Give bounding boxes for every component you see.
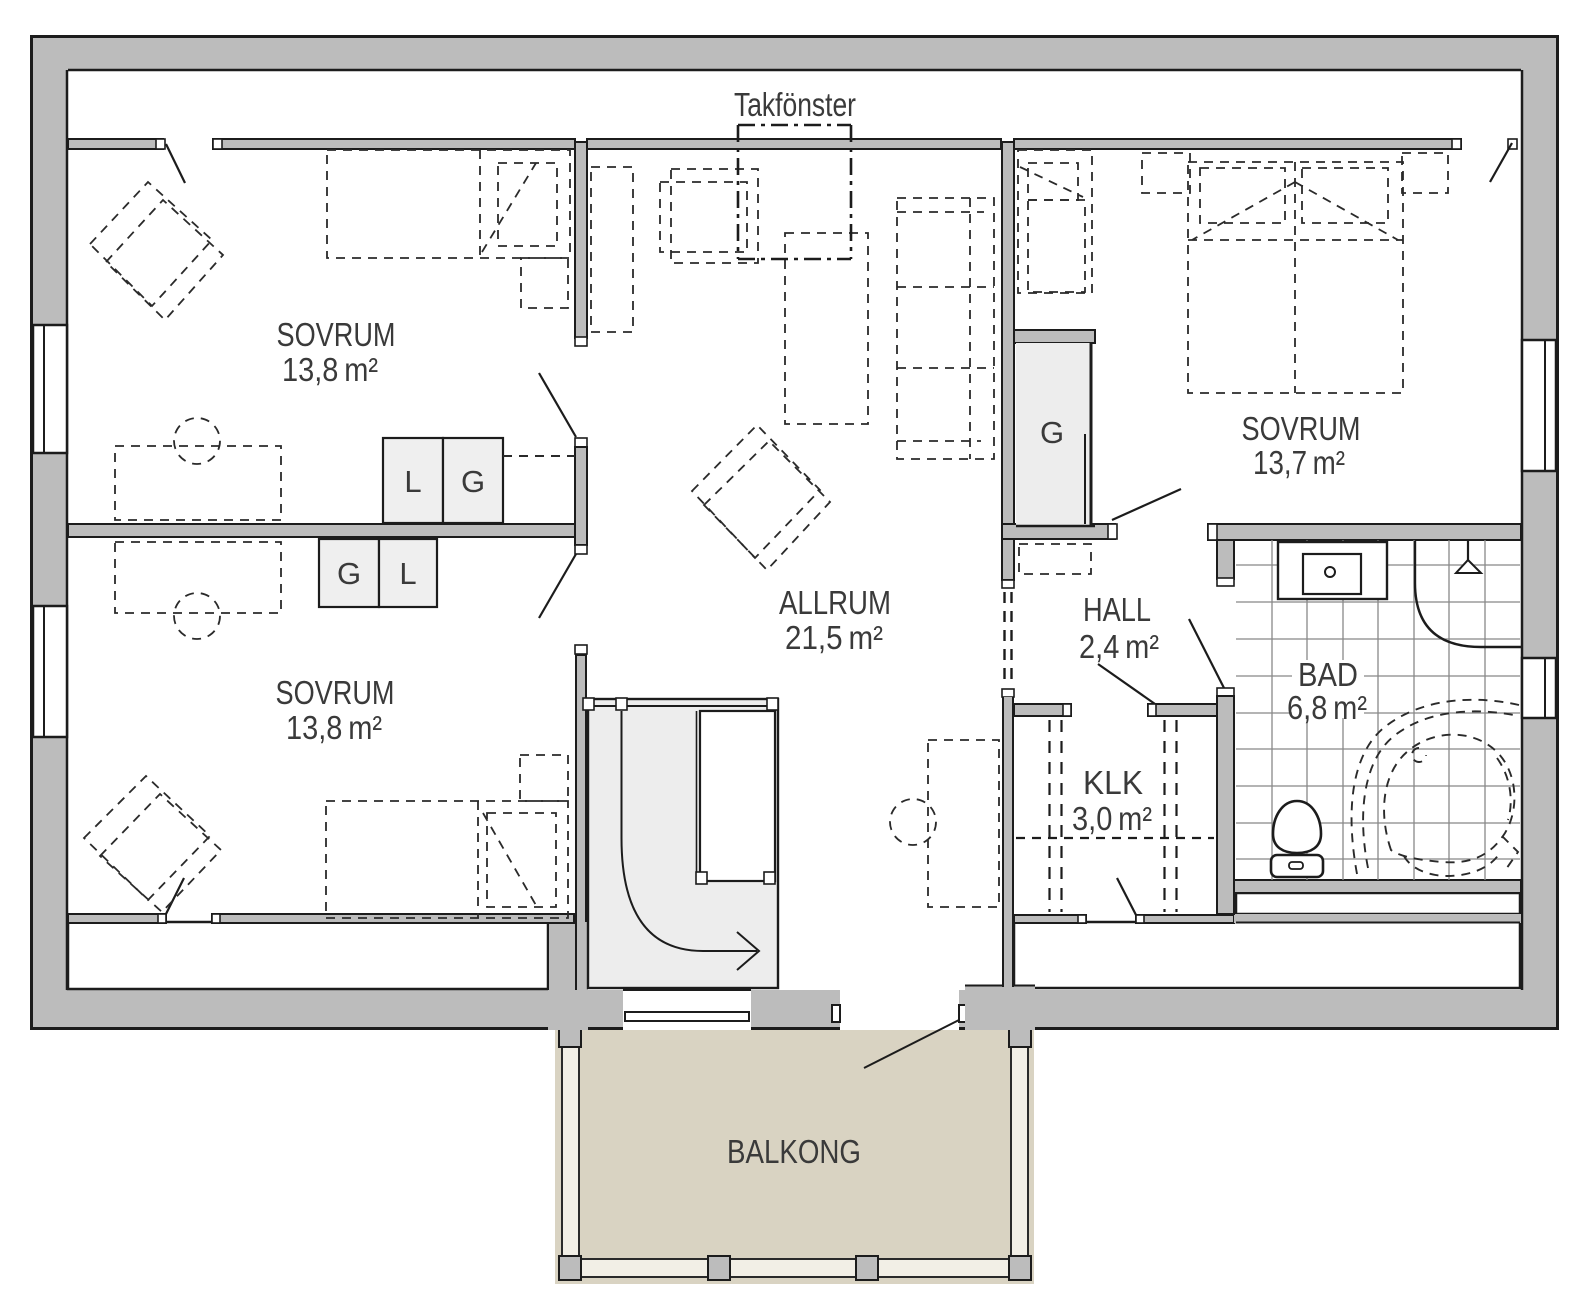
svg-text:13,8 m²: 13,8 m² bbox=[282, 351, 378, 388]
svg-text:6,8 m²: 6,8 m² bbox=[1287, 689, 1367, 726]
svg-text:G: G bbox=[1040, 415, 1064, 450]
svg-text:2,4 m²: 2,4 m² bbox=[1079, 628, 1159, 665]
svg-text:SOVRUM: SOVRUM bbox=[277, 316, 396, 353]
svg-text:L: L bbox=[404, 464, 421, 499]
svg-text:ALLRUM: ALLRUM bbox=[779, 584, 891, 621]
svg-text:21,5 m²: 21,5 m² bbox=[785, 619, 883, 656]
svg-text:G: G bbox=[337, 556, 361, 591]
svg-text:13,7 m²: 13,7 m² bbox=[1253, 444, 1345, 481]
svg-text:SOVRUM: SOVRUM bbox=[1242, 410, 1361, 447]
svg-text:3,0 m²: 3,0 m² bbox=[1072, 800, 1152, 837]
svg-text:BALKONG: BALKONG bbox=[727, 1133, 861, 1170]
svg-text:KLK: KLK bbox=[1083, 764, 1143, 801]
svg-text:HALL: HALL bbox=[1083, 591, 1151, 628]
svg-text:SOVRUM: SOVRUM bbox=[276, 674, 395, 711]
svg-text:13,8 m²: 13,8 m² bbox=[286, 709, 382, 746]
svg-text:Takfönster: Takfönster bbox=[734, 86, 856, 123]
svg-text:G: G bbox=[461, 464, 485, 499]
svg-text:BAD: BAD bbox=[1298, 656, 1358, 693]
svg-text:L: L bbox=[399, 556, 416, 591]
